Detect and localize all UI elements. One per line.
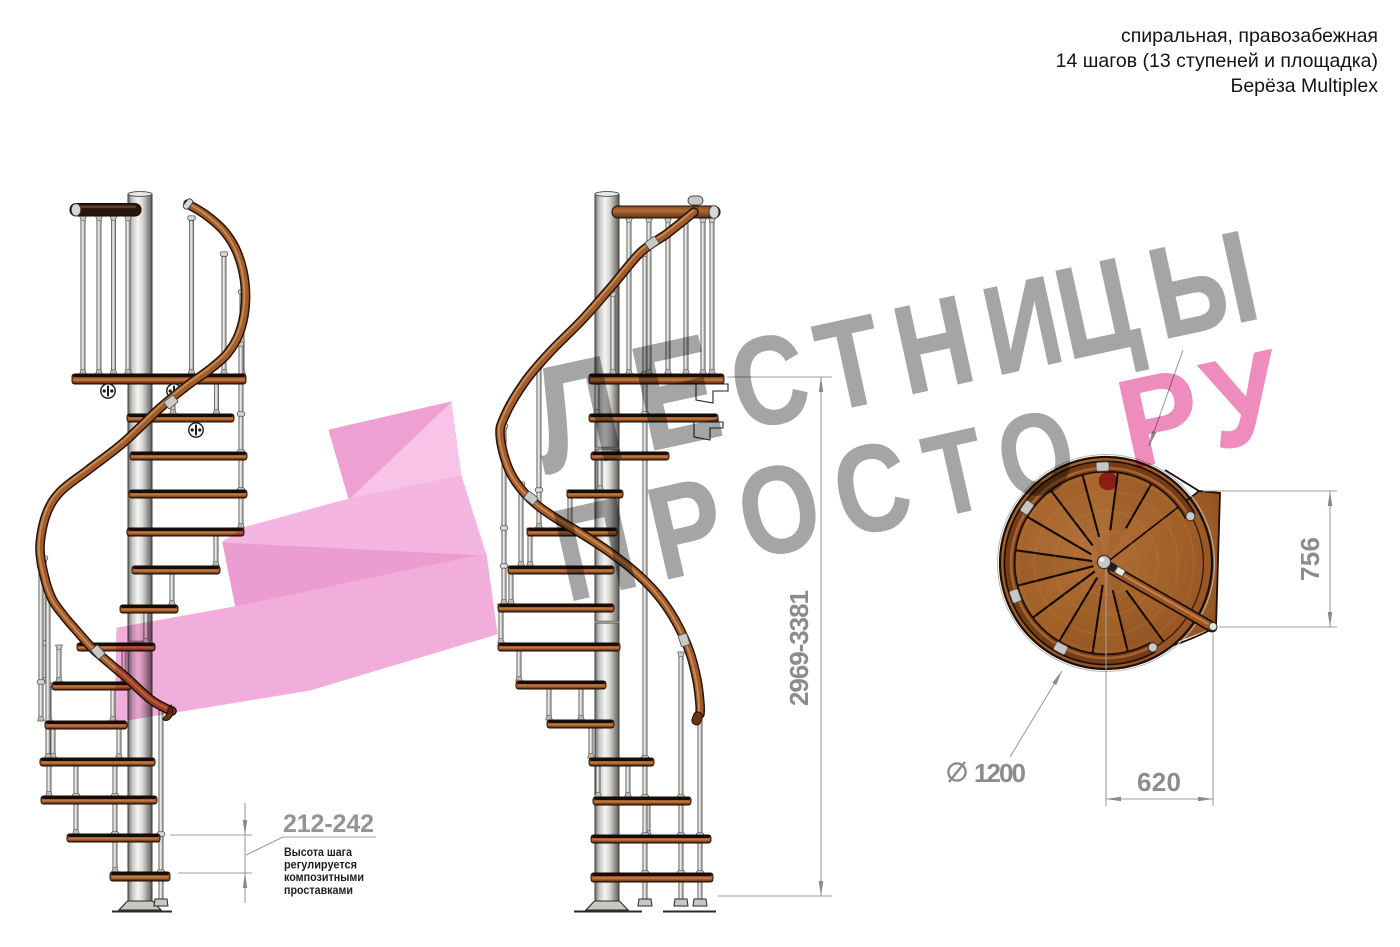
svg-text:спиральная, правозабежная14 ша: спиральная, правозабежная14 шагов (13 ст… <box>1056 25 1379 97</box>
svg-text:620: 620 <box>1137 767 1181 797</box>
svg-text:проставками: проставками <box>284 883 353 897</box>
svg-text:1200: 1200 <box>974 758 1026 788</box>
svg-text:212-242: 212-242 <box>283 810 374 838</box>
svg-text:2969-3381: 2969-3381 <box>784 590 814 706</box>
svg-text:756: 756 <box>1295 537 1325 581</box>
